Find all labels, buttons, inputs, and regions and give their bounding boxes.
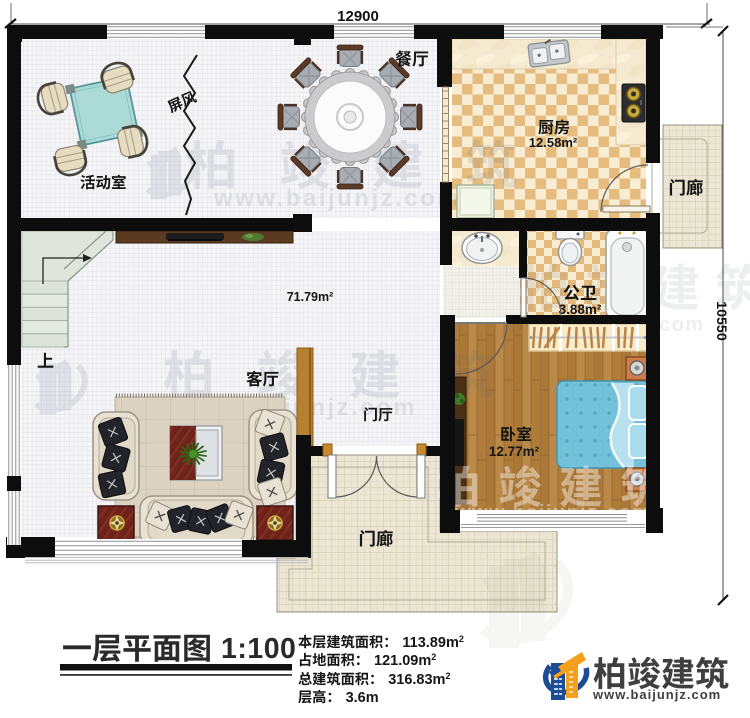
svg-text:www.baijunjz.com: www.baijunjz.com	[592, 687, 721, 702]
svg-text:12.58m²: 12.58m²	[529, 135, 578, 150]
svg-text:12900: 12900	[337, 8, 379, 25]
svg-text:121.09m2: 121.09m2	[374, 652, 436, 669]
svg-text:3.88m²: 3.88m²	[559, 302, 602, 317]
svg-text:12.77m²: 12.77m²	[489, 444, 540, 459]
svg-text:316.83m2: 316.83m2	[388, 671, 450, 688]
svg-text:3.6m: 3.6m	[346, 690, 379, 706]
svg-text:10550: 10550	[713, 301, 729, 341]
svg-text:113.89m2: 113.89m2	[402, 634, 463, 651]
svg-text:www.baijunjz.com: www.baijunjz.com	[213, 185, 461, 212]
svg-text:1:100: 1:100	[221, 633, 296, 665]
svg-text:71.79m²: 71.79m²	[287, 290, 334, 304]
